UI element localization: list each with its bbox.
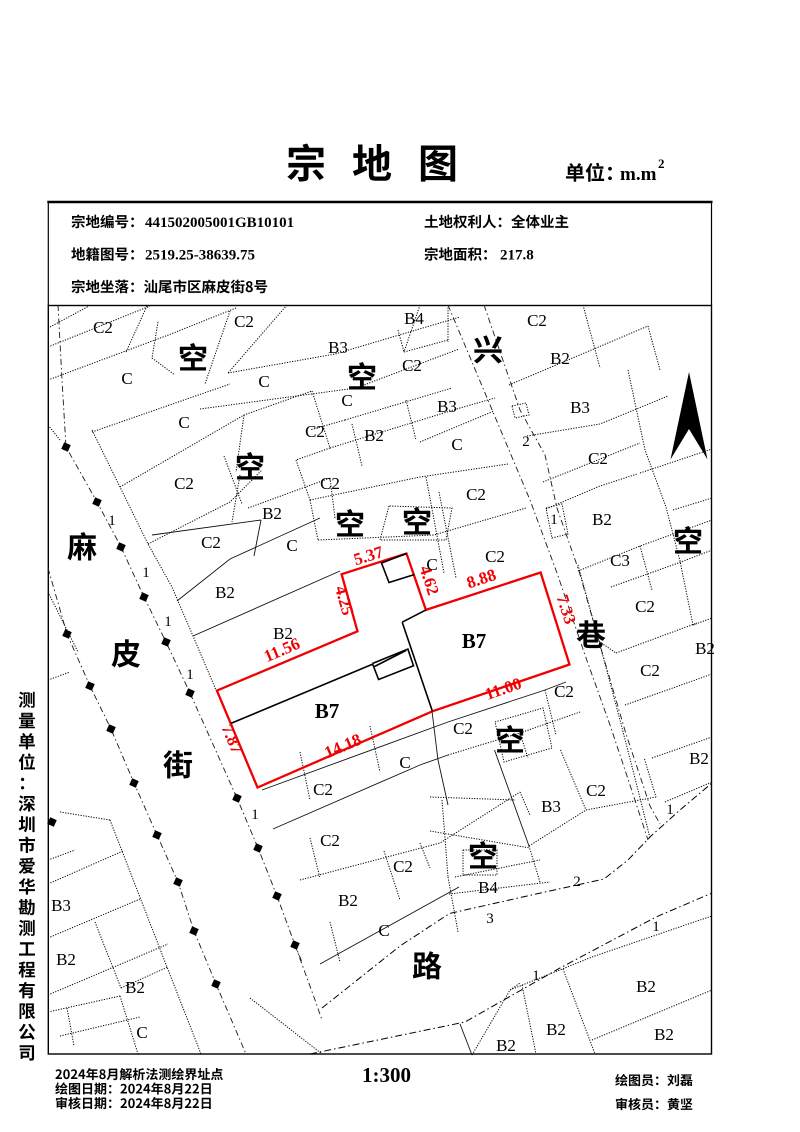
svg-text:1: 1 [666, 802, 674, 818]
svg-text:C2: C2 [640, 661, 660, 680]
svg-text:C: C [136, 1023, 147, 1042]
svg-text:m.m: m.m [620, 164, 657, 185]
svg-text:1: 1 [652, 919, 660, 935]
svg-text:2: 2 [658, 156, 665, 171]
svg-text:C2: C2 [201, 533, 221, 552]
svg-text:C2: C2 [588, 449, 608, 468]
svg-text:B4: B4 [404, 309, 424, 328]
svg-text:B2: B2 [695, 639, 715, 658]
svg-text:C: C [426, 555, 437, 574]
svg-text:1: 1 [550, 512, 558, 528]
svg-text:B2: B2 [592, 510, 612, 529]
svg-text:C2: C2 [320, 474, 340, 493]
svg-text:C3: C3 [610, 551, 630, 570]
svg-text:C2: C2 [305, 422, 325, 441]
svg-text:C: C [286, 536, 297, 555]
svg-text:B2: B2 [56, 950, 76, 969]
svg-text:B2: B2 [550, 349, 570, 368]
svg-text:C2: C2 [393, 857, 413, 876]
svg-text:C2: C2 [93, 318, 113, 337]
svg-text:2: 2 [522, 434, 530, 450]
svg-text:B3: B3 [570, 398, 590, 417]
svg-text:C2: C2 [485, 547, 505, 566]
svg-text:C: C [258, 372, 269, 391]
svg-text:217.8: 217.8 [500, 248, 534, 264]
svg-text:1:300: 1:300 [362, 1063, 411, 1087]
svg-text:B3: B3 [51, 896, 71, 915]
svg-text:C: C [451, 435, 462, 454]
svg-text:B2: B2 [496, 1036, 516, 1055]
svg-text:C2: C2 [402, 356, 422, 375]
svg-text:C: C [378, 921, 389, 940]
svg-text:C2: C2 [320, 831, 340, 850]
svg-text:B2: B2 [125, 978, 145, 997]
svg-text:B2: B2 [546, 1020, 566, 1039]
svg-text:C2: C2 [586, 781, 606, 800]
svg-text:C2: C2 [527, 311, 547, 330]
svg-text:C2: C2 [635, 597, 655, 616]
svg-text:1: 1 [532, 968, 540, 984]
svg-text:B7: B7 [315, 699, 340, 723]
svg-text:B2: B2 [215, 583, 235, 602]
svg-text:C2: C2 [554, 682, 574, 701]
svg-text:B3: B3 [541, 797, 561, 816]
svg-text:B4: B4 [478, 878, 498, 897]
svg-text:C2: C2 [466, 485, 486, 504]
svg-text:C: C [121, 369, 132, 388]
svg-text:B2: B2 [636, 977, 656, 996]
svg-text:2: 2 [573, 874, 581, 890]
svg-text:1: 1 [186, 667, 194, 683]
svg-text:1: 1 [142, 565, 150, 581]
svg-text:C: C [178, 413, 189, 432]
svg-text:C2: C2 [174, 474, 194, 493]
svg-text:1: 1 [164, 614, 172, 630]
svg-text:2519.25-38639.75: 2519.25-38639.75 [145, 248, 255, 264]
svg-text:B2: B2 [689, 749, 709, 768]
svg-text:B3: B3 [328, 338, 348, 357]
svg-text:B7: B7 [462, 629, 487, 653]
svg-text:1: 1 [108, 513, 116, 529]
svg-text:C: C [341, 391, 352, 410]
svg-text:B2: B2 [338, 891, 358, 910]
svg-text:B2: B2 [654, 1025, 674, 1044]
svg-text:B3: B3 [437, 397, 457, 416]
svg-text:3: 3 [486, 911, 494, 927]
svg-text:C: C [399, 753, 410, 772]
svg-text:B2: B2 [262, 504, 282, 523]
svg-text:C2: C2 [234, 312, 254, 331]
svg-text:C2: C2 [313, 780, 333, 799]
svg-text:441502005001GB10101: 441502005001GB10101 [145, 215, 294, 231]
svg-text:C2: C2 [453, 719, 473, 738]
svg-text:B2: B2 [364, 426, 384, 445]
svg-text:1: 1 [251, 807, 259, 823]
svg-text:B2: B2 [273, 624, 293, 643]
